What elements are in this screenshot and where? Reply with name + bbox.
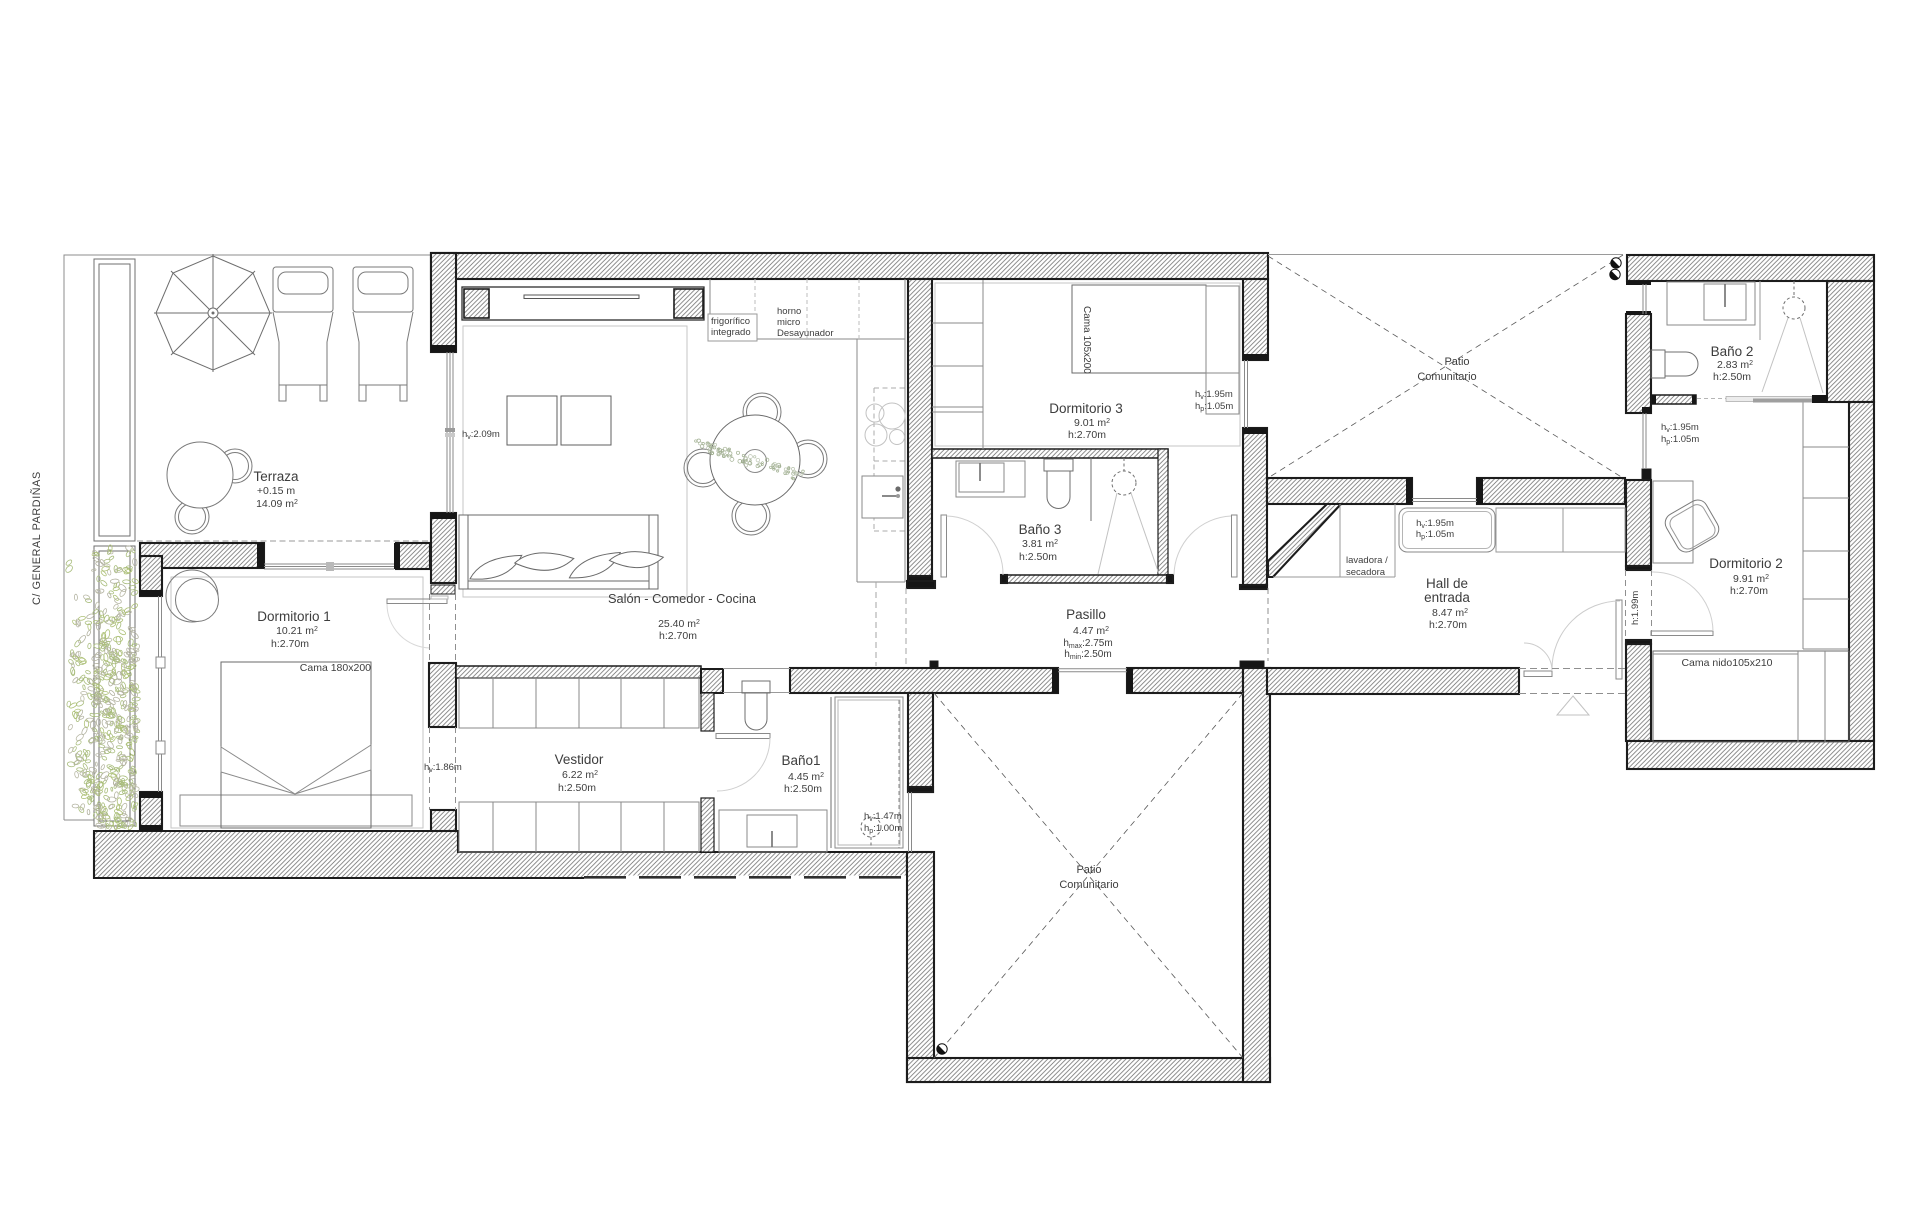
svg-text:2.83 m2: 2.83 m2 [1717,359,1753,371]
svg-text:Comunitario: Comunitario [1417,371,1476,383]
svg-text:h:2.70m: h:2.70m [271,638,309,650]
svg-text:6.22 m2: 6.22 m2 [562,769,598,781]
svg-text:C/ GENERAL PARDIÑAS: C/ GENERAL PARDIÑAS [30,471,43,605]
svg-text:4.45 m2: 4.45 m2 [788,771,824,783]
svg-text:Patio: Patio [1076,864,1101,876]
svg-text:micro: micro [777,317,800,328]
svg-text:Baño 3: Baño 3 [1019,522,1062,537]
svg-text:h:1.99m: h:1.99m [1630,591,1641,625]
svg-text:9.01 m2: 9.01 m2 [1074,417,1110,429]
svg-text:Comunitario: Comunitario [1059,879,1118,891]
svg-text:entrada: entrada [1424,590,1470,605]
svg-text:Cama 180x200: Cama 180x200 [300,662,371,674]
svg-text:14.09 m2: 14.09 m2 [256,498,298,510]
svg-text:3.81 m2: 3.81 m2 [1022,538,1058,550]
svg-text:10.21 m2: 10.21 m2 [276,625,318,637]
svg-text:Dormitorio 1: Dormitorio 1 [257,609,331,624]
svg-text:Cama 105x200: Cama 105x200 [1081,306,1092,374]
svg-text:horno: horno [777,306,801,317]
svg-text:integrado: integrado [711,327,751,338]
svg-text:Baño1: Baño1 [781,753,820,768]
svg-text:Hall de: Hall de [1426,576,1468,591]
svg-text:Baño 2: Baño 2 [1711,344,1754,359]
svg-text:4.47 m2: 4.47 m2 [1073,625,1109,637]
svg-text:h:2.50m: h:2.50m [1713,371,1751,383]
svg-text:h:2.50m: h:2.50m [1019,551,1057,563]
svg-text:Vestidor: Vestidor [555,752,604,767]
svg-text:Cama nido105x210: Cama nido105x210 [1681,657,1772,669]
svg-text:h:2.50m: h:2.50m [784,783,822,795]
svg-text:Desayunador: Desayunador [777,328,834,339]
svg-text:9.91 m2: 9.91 m2 [1733,573,1769,585]
svg-text:h:2.70m: h:2.70m [1730,585,1768,597]
svg-text:Terraza: Terraza [253,469,299,484]
svg-text:h:2.70m: h:2.70m [659,630,697,642]
svg-text:Pasillo: Pasillo [1066,607,1106,622]
svg-text:+0.15 m: +0.15 m [257,485,295,497]
svg-text:8.47 m2: 8.47 m2 [1432,607,1468,619]
svg-text:Salón - Comedor - Cocina: Salón - Comedor - Cocina [608,591,757,606]
svg-text:h:2.50m: h:2.50m [558,782,596,794]
svg-text:Dormitorio 3: Dormitorio 3 [1049,401,1123,416]
svg-text:secadora: secadora [1346,567,1386,578]
svg-text:h:2.70m: h:2.70m [1429,619,1467,631]
svg-text:Dormitorio 2: Dormitorio 2 [1709,556,1783,571]
svg-text:h:2.70m: h:2.70m [1068,429,1106,441]
svg-text:25.40 m2: 25.40 m2 [658,618,700,630]
svg-text:frigorífico: frigorífico [711,316,750,327]
svg-text:Patio: Patio [1444,356,1469,368]
svg-text:lavadora /: lavadora / [1346,555,1388,566]
